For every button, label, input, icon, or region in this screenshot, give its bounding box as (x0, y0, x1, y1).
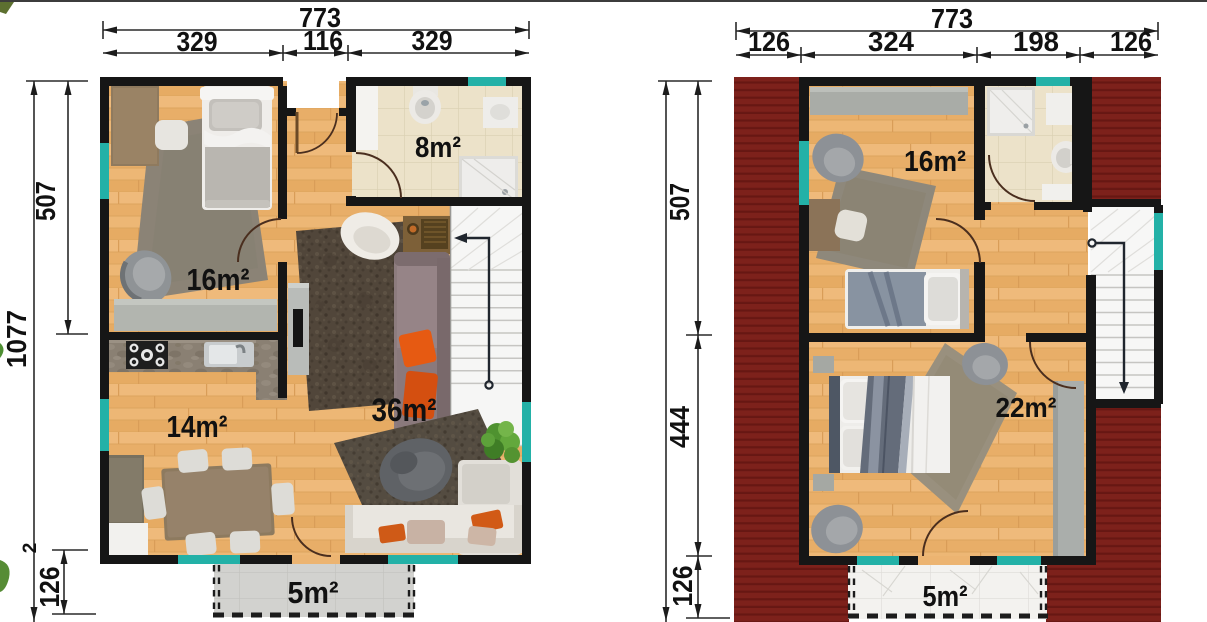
svg-text:8m²: 8m² (415, 132, 461, 164)
svg-text:5m²: 5m² (923, 581, 968, 613)
svg-text:126: 126 (667, 566, 698, 607)
svg-text:198: 198 (1013, 26, 1059, 57)
svg-text:126: 126 (34, 567, 65, 608)
svg-text:116: 116 (303, 25, 343, 56)
svg-text:22m²: 22m² (996, 392, 1057, 423)
svg-text:1077: 1077 (1, 310, 32, 368)
svg-text:773: 773 (931, 3, 973, 34)
svg-text:14m²: 14m² (167, 409, 228, 444)
svg-text:16m²: 16m² (187, 262, 250, 297)
svg-text:126: 126 (1110, 26, 1152, 57)
svg-text:324: 324 (868, 26, 914, 57)
svg-text:507: 507 (30, 181, 61, 221)
svg-text:5m²: 5m² (288, 575, 339, 610)
svg-text:507: 507 (664, 183, 695, 221)
svg-text:2: 2 (20, 543, 41, 554)
svg-text:444: 444 (664, 406, 695, 448)
svg-text:329: 329 (177, 26, 218, 57)
svg-text:126: 126 (748, 26, 790, 57)
svg-text:329: 329 (412, 25, 453, 56)
svg-text:16m²: 16m² (904, 146, 966, 178)
